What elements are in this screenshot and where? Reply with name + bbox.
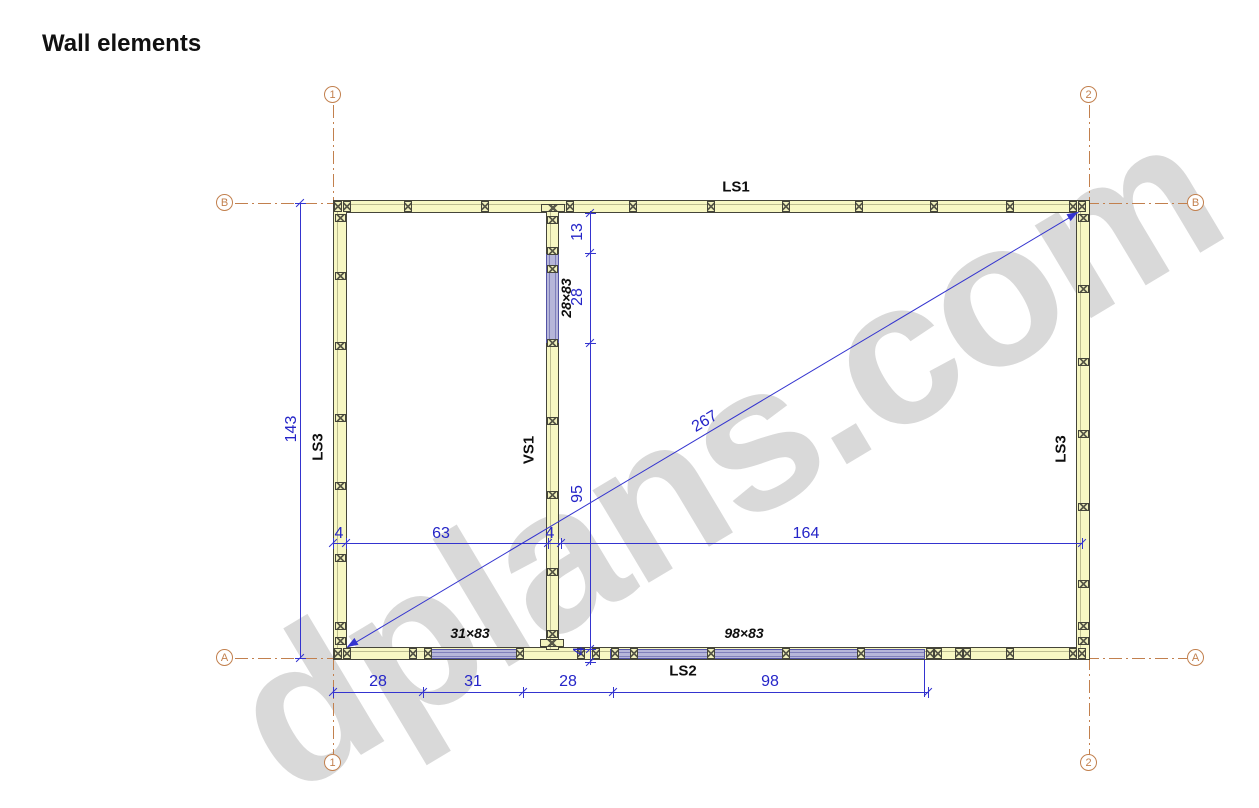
dim-bottom-seg-3: 28	[559, 673, 577, 691]
element-label-28x83: 28×83	[558, 278, 574, 317]
element-98x83	[610, 649, 925, 659]
stud-mark	[1078, 648, 1086, 659]
grid-marker-b-left: B	[216, 194, 233, 211]
stud-mark	[541, 204, 565, 212]
stud-mark	[1078, 285, 1089, 293]
stud-mark	[409, 648, 417, 659]
grid-marker-1-bottom: 1	[324, 754, 341, 771]
dim-line-vertical-chain	[590, 211, 591, 665]
stud-mark	[1078, 580, 1089, 588]
grid-marker-b-right: B	[1187, 194, 1204, 211]
stud-mark	[547, 339, 558, 347]
stud-mark	[934, 648, 942, 659]
stud-mark	[335, 482, 346, 490]
wall-label-ls1: LS1	[722, 179, 750, 196]
stud-mark	[540, 639, 564, 647]
stud-mark	[611, 648, 619, 659]
wall-label-ls2: LS2	[669, 663, 697, 680]
wall-left-ls3	[333, 200, 347, 660]
stud-mark	[343, 201, 351, 212]
stud-mark	[335, 272, 346, 280]
stud-mark	[547, 216, 558, 224]
wall-label-vs1: VS1	[521, 436, 538, 464]
stud-mark	[955, 648, 963, 659]
element-label-31x83: 31×83	[450, 625, 489, 641]
stud-mark	[566, 201, 574, 212]
stud-mark	[334, 648, 342, 659]
grid-marker-2-bottom: 2	[1080, 754, 1097, 771]
dim-total-height: 143	[283, 416, 301, 443]
stud-mark	[707, 201, 715, 212]
stud-mark	[547, 417, 558, 425]
stud-mark	[335, 622, 346, 630]
dim-interior-wall-thickness: 4	[546, 525, 555, 543]
stud-mark	[334, 201, 342, 212]
stud-mark	[547, 630, 558, 638]
stud-mark	[1078, 637, 1089, 645]
stud-mark	[857, 648, 865, 659]
stud-mark	[630, 648, 638, 659]
stud-mark	[963, 648, 971, 659]
stud-mark	[547, 568, 558, 576]
element-31x83	[425, 649, 523, 659]
drawing-canvas: dplans.com Wall elements 1 2 1 2 B B A A…	[0, 0, 1259, 808]
stud-mark	[335, 414, 346, 422]
wall-label-ls3-left: LS3	[310, 433, 327, 461]
stud-mark	[547, 491, 558, 499]
stud-mark	[782, 648, 790, 659]
stud-mark	[930, 201, 938, 212]
dim-bottom-offset: 4	[571, 647, 589, 656]
stud-mark	[1069, 648, 1077, 659]
wall-label-ls3-right: LS3	[1053, 435, 1070, 463]
stud-mark	[1078, 430, 1089, 438]
stud-mark	[1078, 201, 1086, 212]
stud-mark	[424, 648, 432, 659]
dim-top-to-opening: 13	[569, 223, 587, 241]
stud-mark	[707, 648, 715, 659]
stud-mark	[782, 201, 790, 212]
dim-left-wall-thickness: 4	[335, 525, 344, 543]
page-title: Wall elements	[42, 30, 201, 58]
stud-mark	[1078, 622, 1089, 630]
stud-mark	[481, 201, 489, 212]
dim-extension-line	[924, 660, 925, 697]
stud-mark	[1006, 648, 1014, 659]
element-label-98x83: 98×83	[724, 625, 763, 641]
stud-mark	[1078, 503, 1089, 511]
stud-mark	[1078, 358, 1089, 366]
stud-mark	[335, 554, 346, 562]
grid-marker-2-top: 2	[1080, 86, 1097, 103]
grid-marker-1-top: 1	[324, 86, 341, 103]
stud-mark	[404, 201, 412, 212]
stud-mark	[1006, 201, 1014, 212]
dim-bottom-seg-2: 31	[464, 673, 482, 691]
stud-mark	[547, 247, 558, 255]
stud-mark	[629, 201, 637, 212]
dim-bottom-seg-1: 28	[369, 673, 387, 691]
stud-mark	[926, 648, 934, 659]
dim-line-mid-chain	[333, 543, 1082, 544]
stud-mark	[516, 648, 524, 659]
stud-mark	[335, 214, 346, 222]
grid-marker-a-left: A	[216, 649, 233, 666]
dim-left-bay-width: 63	[432, 525, 450, 543]
grid-marker-a-right: A	[1187, 649, 1204, 666]
stud-mark	[335, 342, 346, 350]
dim-opening-to-bottom: 95	[569, 485, 587, 503]
dim-right-bay-width: 164	[793, 525, 820, 543]
stud-mark	[547, 265, 558, 273]
dim-bottom-seg-4: 98	[761, 673, 779, 691]
stud-mark	[855, 201, 863, 212]
